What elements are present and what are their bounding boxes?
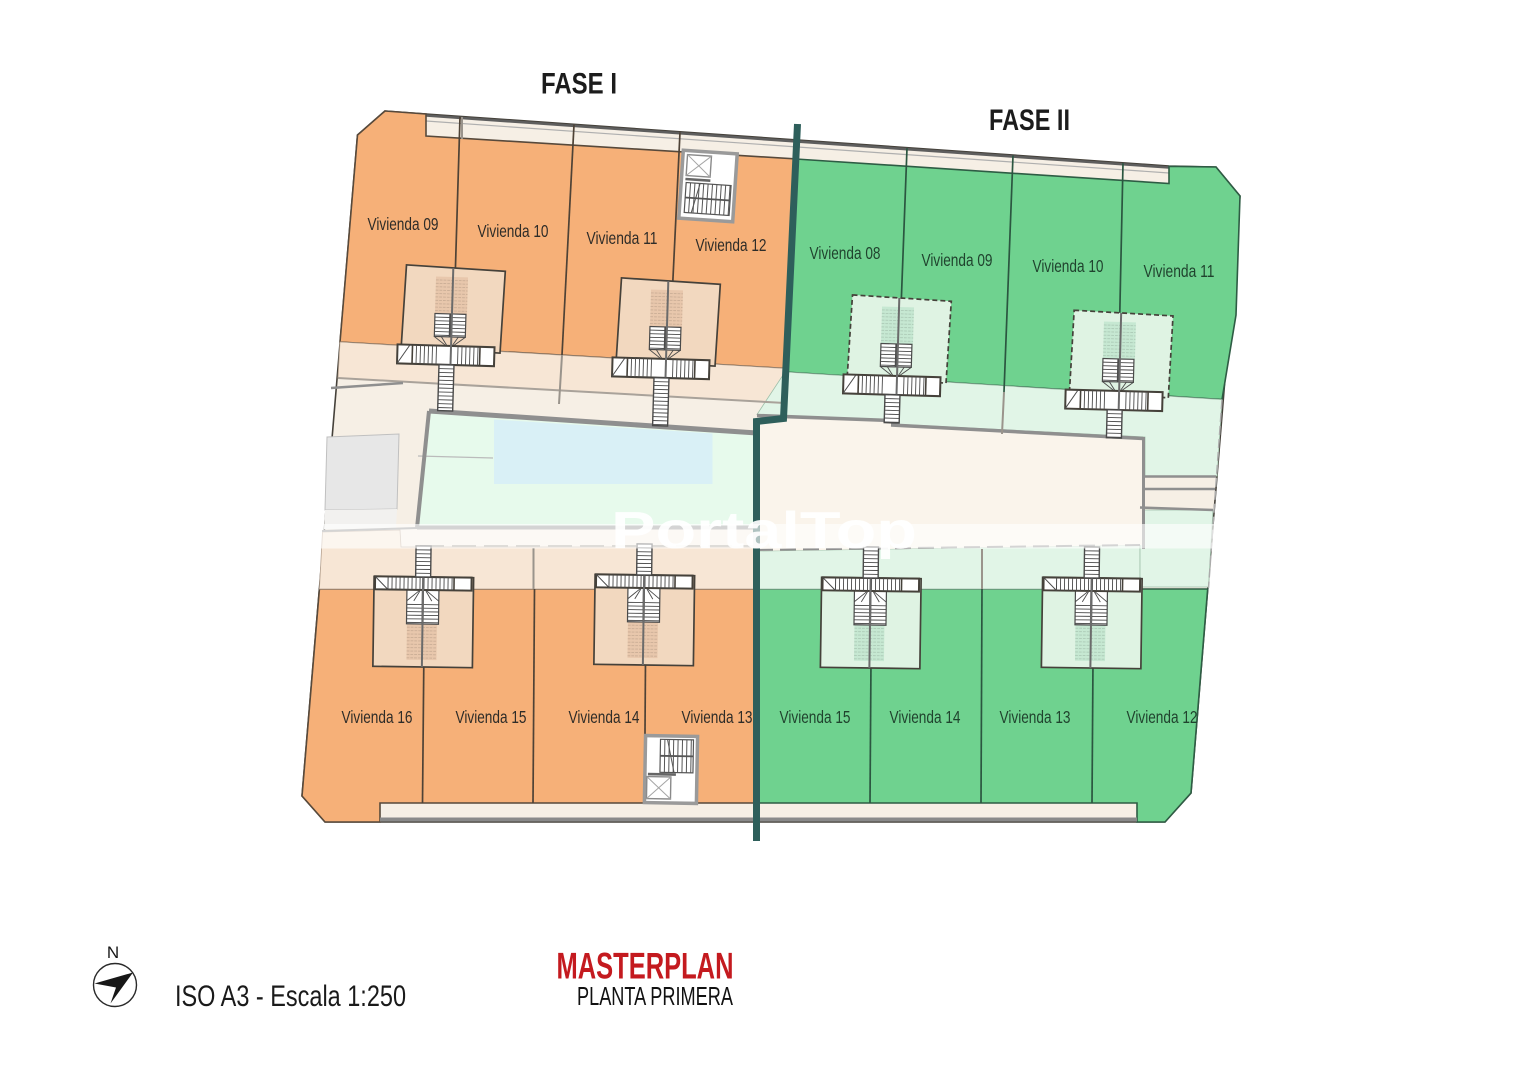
- svg-text:Vivienda 12: Vivienda 12: [1127, 707, 1198, 727]
- svg-text:Vivienda 10: Vivienda 10: [478, 221, 549, 241]
- svg-text:Vivienda 15: Vivienda 15: [456, 707, 527, 727]
- svg-text:ISO A3 - Escala 1:250: ISO A3 - Escala 1:250: [175, 980, 406, 1013]
- svg-text:Vivienda 12: Vivienda 12: [696, 235, 767, 255]
- svg-text:PortalTop: PortalTop: [611, 502, 917, 560]
- svg-text:Vivienda 09: Vivienda 09: [922, 250, 993, 270]
- svg-text:Vivienda 14: Vivienda 14: [569, 707, 640, 727]
- svg-text:FASE I: FASE I: [541, 68, 617, 101]
- svg-text:N: N: [107, 943, 119, 962]
- svg-text:Vivienda 14: Vivienda 14: [890, 707, 961, 727]
- svg-text:Vivienda 13: Vivienda 13: [1000, 707, 1071, 727]
- svg-text:Vivienda 09: Vivienda 09: [368, 214, 439, 234]
- svg-text:Vivienda 08: Vivienda 08: [810, 243, 881, 263]
- svg-text:Vivienda 15: Vivienda 15: [780, 707, 851, 727]
- svg-text:Vivienda 11: Vivienda 11: [587, 228, 658, 248]
- svg-text:PLANTA PRIMERA: PLANTA PRIMERA: [577, 981, 733, 1011]
- svg-text:FASE II: FASE II: [989, 104, 1070, 137]
- svg-text:Vivienda 10: Vivienda 10: [1033, 256, 1104, 276]
- svg-text:Vivienda 11: Vivienda 11: [1144, 261, 1215, 281]
- svg-text:Vivienda 13: Vivienda 13: [682, 707, 753, 727]
- svg-text:Vivienda 16: Vivienda 16: [342, 707, 413, 727]
